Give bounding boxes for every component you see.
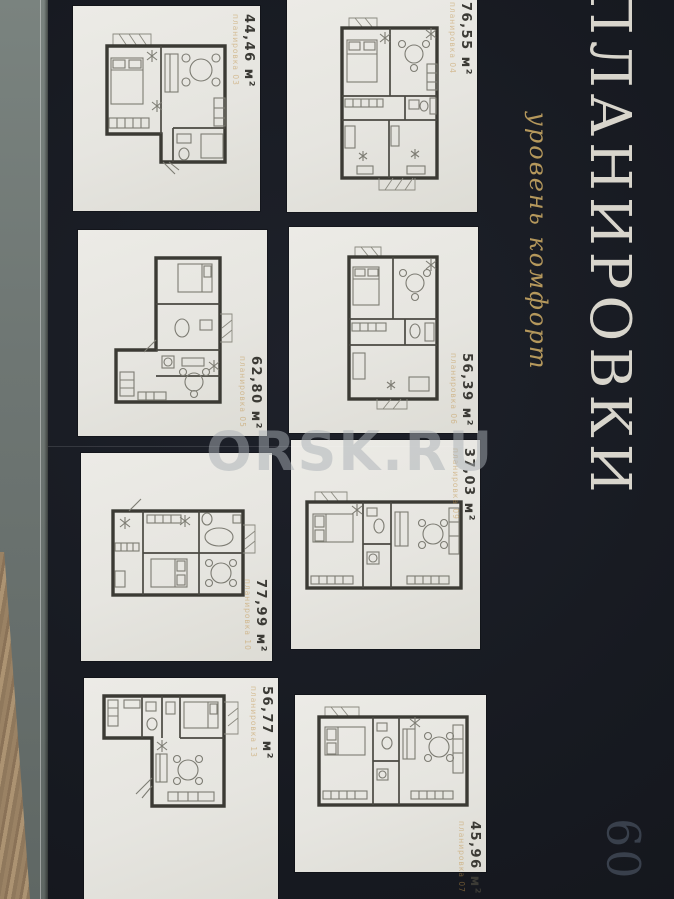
bed-icon xyxy=(184,702,218,728)
floorplan-card-4: 56,39 м² планировка 06 xyxy=(289,227,478,433)
area-label: 56,77 м² xyxy=(259,686,274,760)
plan-code-label: планировка 10 xyxy=(243,579,252,651)
plan-code-label: планировка 05 xyxy=(238,356,247,428)
floorplan-card-8: 45,96 м² планировка 07 xyxy=(295,695,486,872)
floorplan-card-3: 62,80 м² планировка 05 xyxy=(78,230,267,436)
dining-table-icon xyxy=(400,270,431,301)
page-subtitle: уровень комфорт xyxy=(524,112,552,370)
plan-code-label: планировка 07 xyxy=(457,821,466,893)
plant-icon xyxy=(387,380,395,390)
dining-table-icon xyxy=(425,733,454,762)
area-label: 45,96 м² xyxy=(467,821,482,895)
floorplan-card-7: 56,77 м² планировка 13 xyxy=(84,678,278,899)
bed-icon xyxy=(325,727,365,755)
area-label: 56,39 м² xyxy=(459,353,474,427)
dining-table-icon xyxy=(419,520,448,549)
bed-icon xyxy=(347,40,377,82)
area-label: 44,46 м² xyxy=(241,14,256,88)
floorplan-card-1: 44,46 м² планировка 03 xyxy=(73,6,260,211)
page-title: ПЛАНИРОВКИ xyxy=(576,0,643,499)
plant-icon xyxy=(359,151,367,161)
area-label: 76,55 м² xyxy=(458,2,473,76)
bed-icon xyxy=(111,58,143,104)
dining-table-icon xyxy=(399,41,430,72)
plan-code-label: планировка 04 xyxy=(448,2,457,74)
bed-icon xyxy=(178,264,212,292)
area-label: 62,80 м² xyxy=(248,356,263,430)
bed-icon xyxy=(151,559,187,587)
watermark: ORSK.RU xyxy=(206,420,494,483)
dining-table-icon xyxy=(180,369,210,398)
plant-icon xyxy=(209,360,219,372)
brochure-page-photo: 44,46 м² планировка 03 xyxy=(0,0,674,899)
plan-code-label: планировка 06 xyxy=(449,353,458,425)
plan-code-label: планировка 13 xyxy=(249,686,258,758)
plant-icon xyxy=(157,740,167,752)
plant-icon xyxy=(147,50,157,62)
dining-table-icon xyxy=(206,560,237,587)
page-number: 09 xyxy=(598,816,652,879)
bed-icon xyxy=(353,267,379,305)
plant-icon xyxy=(120,517,130,529)
plan-code-label: планировка 03 xyxy=(231,14,240,86)
plant-icon xyxy=(380,32,390,44)
bed-icon xyxy=(313,514,353,542)
sofa-icon xyxy=(165,54,178,92)
area-label: 77,99 м² xyxy=(253,579,268,653)
dining-table-icon xyxy=(182,54,220,86)
plant-icon xyxy=(411,149,419,159)
plant-icon xyxy=(410,717,420,729)
dining-table-icon xyxy=(174,756,203,785)
floorplan-card-5: 77,99 м² планировка 10 xyxy=(81,453,272,661)
floorplan-card-2: 76,55 м² планировка 04 xyxy=(287,0,477,212)
plant-icon xyxy=(426,28,436,40)
